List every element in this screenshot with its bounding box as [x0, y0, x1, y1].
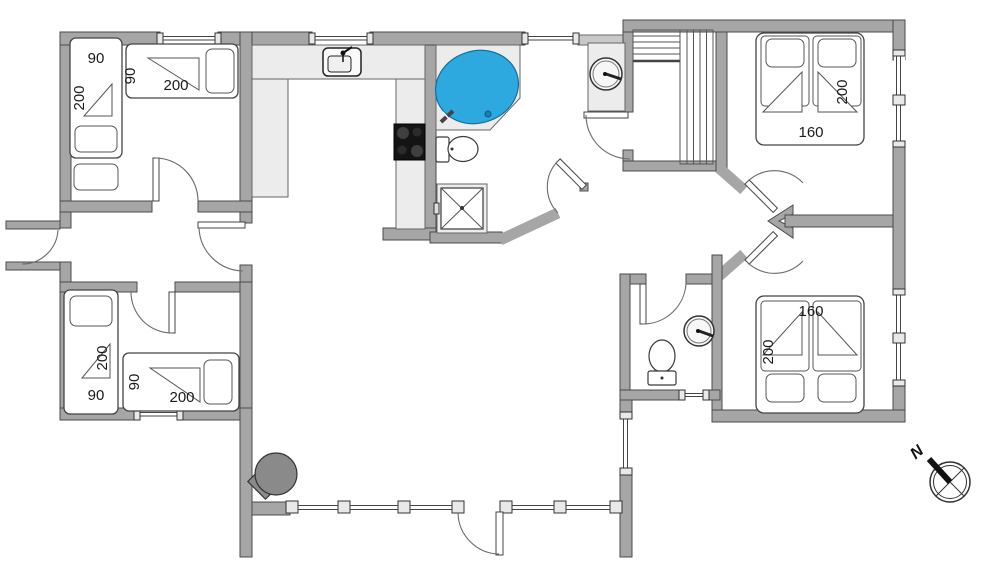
pillow	[818, 39, 856, 67]
kitchen-sink	[323, 47, 361, 76]
window	[893, 50, 905, 147]
glass-facade	[286, 501, 622, 513]
double-bed: 200 160	[756, 33, 864, 145]
bedroom-bottom-right-furniture: 160 200	[756, 296, 864, 413]
door-bathroom	[547, 159, 586, 213]
door-bedroom-bottom-left	[131, 292, 175, 333]
sauna-wall	[623, 161, 720, 171]
wc-toilet	[648, 340, 676, 385]
wall-segment	[893, 143, 905, 291]
window	[309, 33, 373, 44]
corner-spa	[426, 40, 528, 134]
wall-segment	[240, 265, 252, 282]
pillow	[204, 360, 232, 404]
shower-valve	[434, 203, 439, 214]
door-wc	[640, 283, 686, 324]
wall-segment	[620, 472, 632, 557]
pillow	[766, 374, 804, 402]
bedroom-bottom-left-furniture: 200 90 90 200	[64, 290, 239, 414]
sauna-bench-vertical	[680, 30, 713, 164]
shower	[434, 184, 487, 233]
bed-width-label: 90	[88, 387, 105, 404]
stove-cooktop	[394, 124, 425, 160]
pillow	[75, 126, 117, 152]
wall-segment	[252, 502, 290, 515]
single-bed: 90 200	[122, 44, 238, 98]
window	[620, 412, 632, 475]
bed-width-label: 90	[122, 68, 139, 85]
pillow	[206, 49, 234, 93]
bed-length-label: 200	[760, 339, 777, 364]
kitchen	[252, 45, 425, 229]
single-bed: 90 200	[70, 38, 122, 158]
bed-length-label: 200	[94, 345, 111, 370]
window	[679, 390, 709, 400]
door-hall-living	[198, 222, 245, 271]
window	[157, 33, 221, 44]
single-bed: 90 200	[123, 353, 239, 411]
compass-rose: N	[907, 442, 970, 502]
sauna-bench-horizontal	[633, 30, 680, 61]
diagonal-wall	[500, 213, 558, 240]
pillow	[818, 374, 856, 402]
bed-length-label: 200	[169, 389, 194, 406]
bed-length-label: 200	[834, 79, 851, 104]
door-entrance-south	[458, 512, 503, 555]
bed-width-label: 160	[798, 303, 823, 320]
wall-segment	[198, 201, 252, 212]
pillow	[70, 296, 112, 326]
sauna-wall	[716, 32, 727, 172]
bed-width-label: 90	[126, 374, 143, 391]
sauna	[633, 30, 713, 164]
bed-width-label: 160	[798, 124, 823, 141]
door-bedroom-bottom-right	[745, 232, 803, 274]
windbreak-wall	[6, 221, 60, 229]
toilet	[436, 137, 478, 163]
bed-width-label: 90	[88, 50, 105, 67]
floor-plan: 90 200 90 200 200 90 90 200	[0, 0, 1000, 585]
wall-segment	[240, 32, 252, 212]
wood-stove	[248, 453, 297, 499]
wall-segment	[620, 274, 630, 400]
bathroom	[426, 40, 625, 233]
wall-segment	[60, 201, 152, 212]
diagonal-wall	[719, 254, 744, 276]
window	[893, 289, 905, 386]
wc-room	[648, 316, 714, 385]
washbasin	[588, 43, 625, 111]
windbreak-wall	[6, 262, 60, 270]
door-bedroom-top-left	[153, 158, 198, 201]
wall-segment	[620, 390, 682, 400]
door-terrace-west	[22, 230, 58, 264]
window	[522, 33, 579, 44]
wall-segment	[430, 232, 502, 243]
diagonal-wall	[719, 168, 744, 190]
wall-segment	[383, 228, 436, 240]
wall-segment	[218, 32, 312, 45]
wall-segment	[785, 215, 893, 227]
bed-length-label: 200	[163, 77, 188, 94]
bedroom-top-right-furniture: 200 160	[756, 33, 864, 145]
wall-segment	[240, 282, 252, 408]
nightstand	[74, 164, 118, 190]
door-bedroom-top-right	[745, 171, 803, 213]
single-bed: 200 90	[64, 290, 118, 414]
bed-length-label: 200	[71, 85, 88, 110]
pillow	[766, 39, 804, 67]
double-bed: 160 200	[756, 296, 864, 413]
wall-segment	[240, 212, 252, 223]
north-label: N	[907, 442, 927, 463]
wc-washbasin	[684, 316, 714, 346]
wall-segment	[370, 32, 525, 45]
spa-drain	[485, 111, 491, 117]
